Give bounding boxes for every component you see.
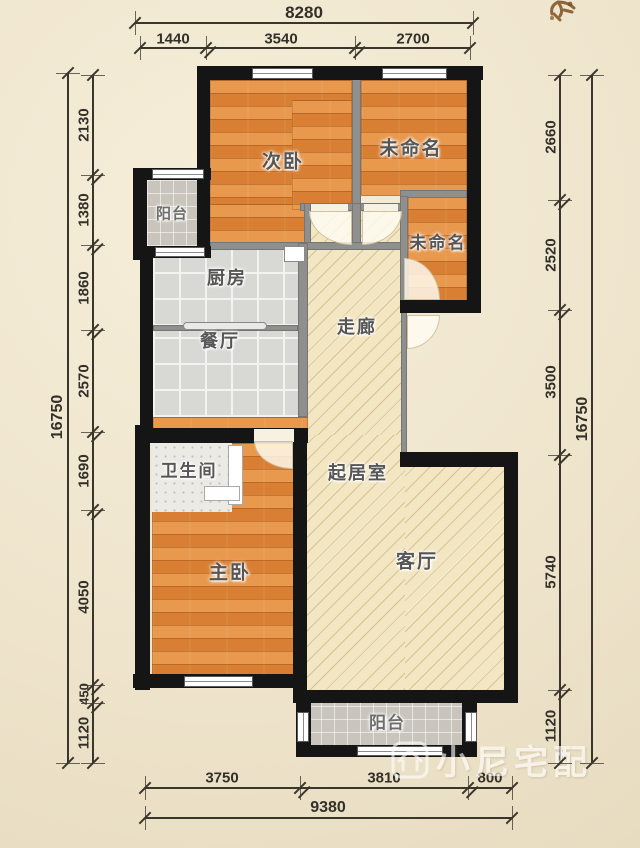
dimension-label: 3540: [264, 31, 297, 48]
dimension-label: 1380: [76, 193, 93, 226]
dimension-label: 1440: [156, 31, 189, 48]
room-label-unnamed1: 未命名: [379, 134, 442, 161]
dimension-label: 800: [477, 770, 502, 787]
wall: [400, 452, 518, 467]
wall: [467, 66, 481, 312]
dimension-label: 2700: [396, 31, 429, 48]
partition-wall: [298, 243, 308, 417]
room-label-unnamed2: 未命名: [410, 229, 467, 254]
room-label-balcony-bottom: 阳台: [369, 709, 405, 734]
room-label-living-area: 起居室: [328, 459, 388, 485]
dimension-label: 3500: [543, 365, 560, 398]
dimension-label: 5740: [543, 555, 560, 588]
window: [155, 247, 205, 257]
dimension-label-left-total: 16750: [49, 395, 67, 440]
wall: [504, 452, 518, 703]
dimension-label-top-total: 8280: [285, 3, 323, 23]
room-label-living-room: 客厅: [396, 547, 438, 574]
window: [357, 746, 443, 756]
door-swing: [407, 315, 440, 349]
room-label-secondary-bedroom: 次卧: [262, 147, 304, 174]
kitchen-appliance: [284, 246, 305, 262]
dimension-label: 2520: [543, 238, 560, 271]
dimension-label: 3810: [367, 770, 400, 787]
dimension-label: 4050: [76, 580, 93, 613]
wall: [140, 246, 153, 432]
window: [252, 68, 313, 79]
dimension-label: 2570: [76, 364, 93, 397]
dimension-label: 3750: [205, 770, 238, 787]
wall: [293, 690, 518, 703]
door-opening: [364, 204, 398, 211]
dimension-label: 1860: [76, 271, 93, 304]
dimension-line: [145, 817, 512, 819]
living-room-floor: [405, 460, 504, 692]
room-label-kitchen: 厨房: [207, 264, 247, 290]
dimension-line: [559, 75, 561, 763]
wall: [293, 428, 307, 692]
window: [297, 712, 309, 742]
dimension-line: [67, 73, 69, 763]
window: [382, 68, 447, 79]
floorplan-canvas: 阳台 次卧 未命名 未命名 厨房 餐厅 走廊 卫生间 起居室 主卧 客厅 阳台 …: [0, 0, 640, 848]
window: [152, 169, 204, 179]
door-opening: [311, 204, 348, 211]
window: [465, 712, 477, 742]
dimension-label-right-total: 16750: [574, 397, 592, 442]
decorative-flourish: [530, 0, 640, 30]
dimension-label-bottom-total: 9380: [310, 799, 346, 817]
room-label-dining: 餐厅: [200, 327, 240, 353]
partition-wall: [400, 190, 467, 198]
dimension-label: 1120: [76, 717, 93, 750]
room-label-bathroom: 卫生间: [161, 457, 218, 482]
dimension-line: [92, 75, 94, 763]
bathroom-sink: [204, 486, 240, 501]
partition-wall: [352, 70, 361, 204]
wall: [400, 300, 481, 313]
room-label-corridor: 走廊: [337, 313, 377, 339]
wall: [135, 425, 150, 690]
room-label-master-bedroom: 主卧: [209, 558, 251, 585]
room-label-balcony-top: 阳台: [156, 203, 188, 224]
dimension-label: 2660: [543, 120, 560, 153]
window: [184, 676, 253, 687]
wall: [197, 66, 210, 258]
dimension-label: 1120: [543, 710, 560, 743]
room-secondary-bedroom-floor: [210, 204, 308, 244]
dimension-label: 2130: [76, 108, 93, 141]
dimension-line: [145, 787, 512, 789]
dimension-label: 1690: [76, 454, 93, 487]
